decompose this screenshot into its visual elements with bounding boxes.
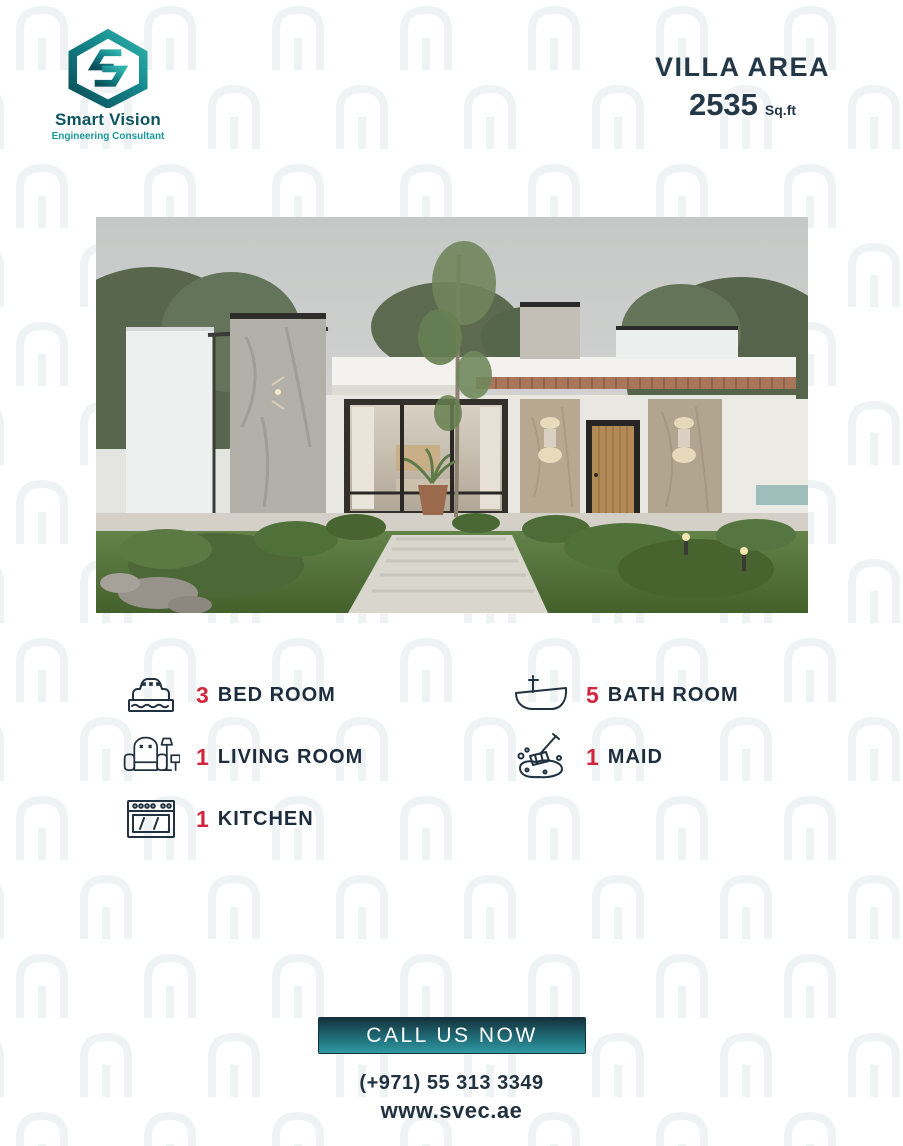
armchair-icon: [122, 731, 180, 783]
features-section: 3 BED ROOM 1 LIVING ROOM: [96, 668, 808, 848]
feature-maid: 1 MAID: [512, 730, 663, 784]
bedrooms-count: 3: [196, 682, 209, 709]
villa-area-block: VILLA AREA 2535 Sq.ft: [640, 52, 845, 123]
feature-kitchen: 1 KITCHEN: [122, 792, 314, 846]
bathrooms-count: 5: [586, 682, 599, 709]
bathrooms-label: BATH ROOM: [608, 684, 739, 707]
bedrooms-label: BED ROOM: [218, 684, 336, 707]
villa-photo: [96, 217, 808, 613]
brand-tagline: Engineering Consultant: [37, 131, 179, 142]
website-url: www.svec.ae: [0, 1098, 903, 1124]
bathtub-icon: [512, 669, 570, 721]
phone-number: (+971) 55 313 3349: [0, 1072, 903, 1095]
living-room-label: LIVING ROOM: [218, 746, 363, 769]
mop-icon: [512, 731, 570, 783]
kitchen-count: 1: [196, 806, 209, 833]
feature-bedrooms: 3 BED ROOM: [122, 668, 336, 722]
hexagon-s-logo-icon: [62, 28, 154, 108]
feature-bathrooms: 5 BATH ROOM: [512, 668, 739, 722]
villa-area-title: VILLA AREA: [640, 52, 845, 83]
bed-icon: [122, 669, 180, 721]
feature-living-room: 1 LIVING ROOM: [122, 730, 363, 784]
call-us-now-button[interactable]: CALL US NOW: [318, 1017, 586, 1054]
brand-logo-block: Smart Vision Engineering Consultant: [37, 28, 179, 142]
brand-name: Smart Vision: [37, 110, 179, 130]
maid-label: MAID: [608, 746, 663, 769]
kitchen-label: KITCHEN: [218, 808, 314, 831]
villa-area-value: 2535: [689, 87, 758, 123]
flyer-page: Smart Vision Engineering Consultant VILL…: [0, 0, 903, 1146]
living-room-count: 1: [196, 744, 209, 771]
maid-count: 1: [586, 744, 599, 771]
villa-area-unit: Sq.ft: [765, 102, 796, 118]
stove-icon: [122, 793, 180, 845]
villa-exterior-render: [96, 217, 808, 613]
